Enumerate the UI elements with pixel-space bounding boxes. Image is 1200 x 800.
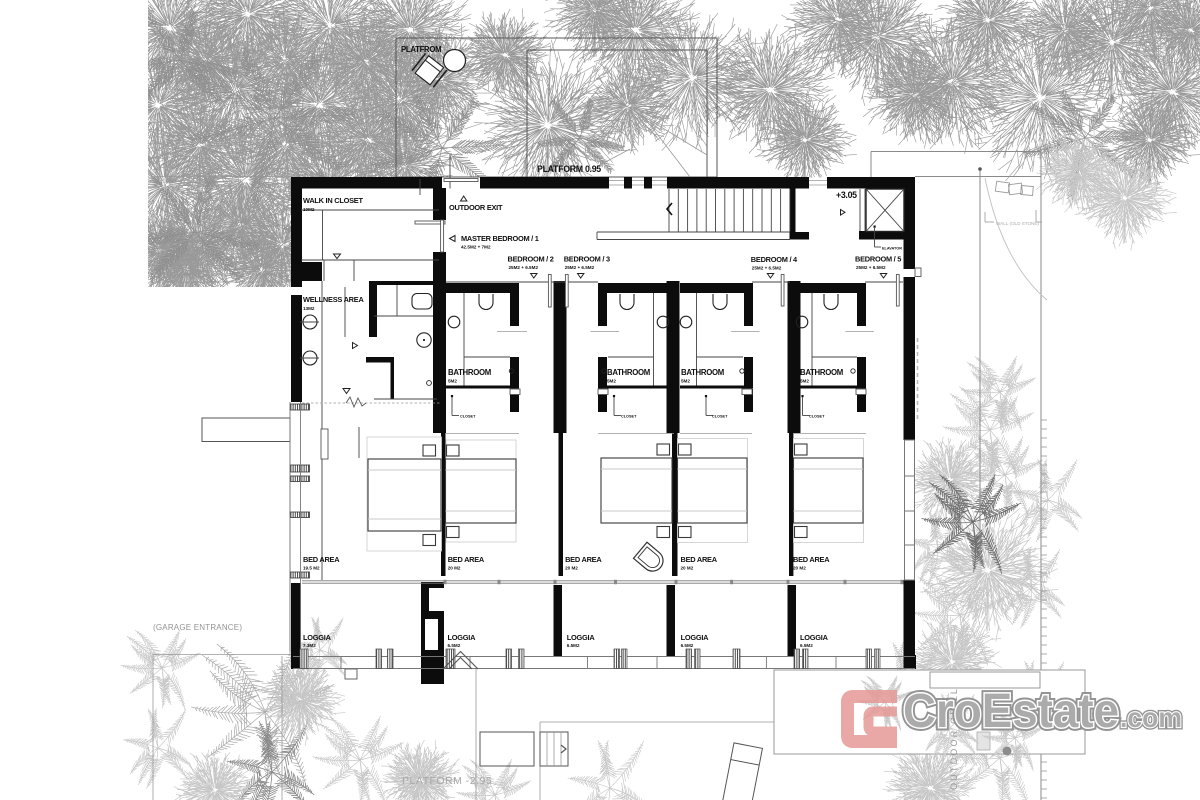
svg-text:BED AREA: BED AREA [793,555,830,564]
svg-text:BED AREA: BED AREA [565,555,602,564]
svg-text:5M2: 5M2 [681,379,690,384]
svg-text:25M2 + 6.5M2: 25M2 + 6.5M2 [565,265,595,270]
svg-text:19.5 M2: 19.5 M2 [303,566,320,571]
svg-text:CLOSET: CLOSET [621,415,637,419]
svg-text:ELAVATOR: ELAVATOR [882,247,902,251]
svg-text:PLATFORM -2.95: PLATFORM -2.95 [402,775,492,787]
svg-text:5M2: 5M2 [607,379,616,384]
svg-text:6.5M2: 6.5M2 [448,643,461,648]
svg-text:BATHROOM: BATHROOM [448,368,491,377]
svg-text:7.3M2: 7.3M2 [303,643,316,648]
svg-text:6.5M2: 6.5M2 [567,643,580,648]
svg-text:20 M2: 20 M2 [565,566,578,571]
svg-text:BED AREA: BED AREA [448,555,485,564]
svg-text:LOGGIA: LOGGIA [303,633,332,642]
svg-text:PLATFROM: PLATFROM [401,45,441,54]
svg-text:25M2 + 6.5M2: 25M2 + 6.5M2 [509,265,539,270]
svg-text:20 M2: 20 M2 [793,566,806,571]
svg-text:WALK IN CLOSET: WALK IN CLOSET [303,196,363,205]
svg-text:LOGGIA: LOGGIA [448,633,477,642]
svg-text:.com: .com [1120,702,1182,733]
svg-text:WALL (OLD STONE): WALL (OLD STONE) [996,221,1039,226]
svg-text:BED AREA: BED AREA [303,555,340,564]
svg-text:MASTER BEDROOM / 1: MASTER BEDROOM / 1 [461,234,539,243]
svg-text:(GARAGE ENTRANCE): (GARAGE ENTRANCE) [153,623,242,632]
svg-text:42.5M2 + 7M2: 42.5M2 + 7M2 [461,245,491,250]
svg-text:BEDROOM / 2: BEDROOM / 2 [508,255,554,264]
svg-text:CroEstate: CroEstate [903,685,1119,738]
svg-text:LOGGIA: LOGGIA [681,633,710,642]
svg-text:20 M2: 20 M2 [681,566,694,571]
svg-text:BATHROOM: BATHROOM [607,368,650,377]
svg-text:5M2: 5M2 [448,379,457,384]
svg-text:LOGGIA: LOGGIA [800,633,829,642]
svg-text:10M2: 10M2 [303,207,315,212]
svg-text:BATHROOM: BATHROOM [681,368,724,377]
svg-text:CLOSET: CLOSET [809,415,825,419]
svg-text:WELLNESS AREA: WELLNESS AREA [303,295,364,304]
svg-text:BEDROOM / 5: BEDROOM / 5 [855,255,901,264]
svg-text:6.5M2: 6.5M2 [681,643,694,648]
svg-text:BEDROOM / 3: BEDROOM / 3 [564,255,610,264]
svg-text:PLATFORM 0.95: PLATFORM 0.95 [537,164,601,174]
svg-text:BEDROOM / 4: BEDROOM / 4 [751,255,798,264]
svg-text:6.5M2: 6.5M2 [800,643,813,648]
svg-text:25M2 + 6.5M2: 25M2 + 6.5M2 [752,266,782,271]
svg-text:20 M2: 20 M2 [448,566,461,571]
svg-text:5M2: 5M2 [800,379,809,384]
svg-text:CLOSET: CLOSET [460,415,476,419]
svg-text:CLOSET: CLOSET [712,415,728,419]
svg-text:BED AREA: BED AREA [681,555,718,564]
svg-text:BATHROOM: BATHROOM [800,368,843,377]
svg-text:13M2: 13M2 [303,306,315,311]
svg-text:+3.05: +3.05 [836,190,857,200]
svg-text:25M2 + 6.5M2: 25M2 + 6.5M2 [856,265,886,270]
svg-text:LOGGIA: LOGGIA [567,633,596,642]
svg-text:OUTDOOR EXIT: OUTDOOR EXIT [449,203,503,212]
